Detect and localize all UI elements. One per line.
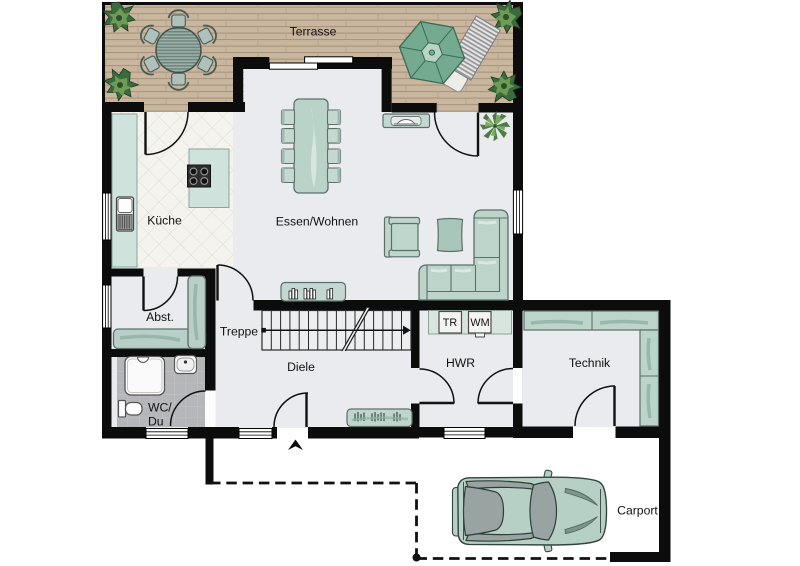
svg-text:Abst.: Abst.	[146, 310, 174, 324]
svg-text:Treppe: Treppe	[220, 325, 258, 339]
svg-text:HWR: HWR	[446, 356, 475, 370]
svg-text:Terrasse: Terrasse	[290, 25, 337, 39]
svg-text:WC/: WC/	[148, 401, 172, 415]
svg-text:Carport: Carport	[617, 504, 658, 518]
svg-text:Du: Du	[148, 415, 164, 429]
svg-text:Essen/Wohnen: Essen/Wohnen	[276, 215, 358, 229]
svg-text:Küche: Küche	[147, 214, 182, 228]
svg-text:Diele: Diele	[287, 360, 315, 374]
svg-text:TR: TR	[443, 317, 458, 329]
svg-text:WM: WM	[470, 317, 489, 329]
svg-text:Technik: Technik	[569, 356, 611, 370]
